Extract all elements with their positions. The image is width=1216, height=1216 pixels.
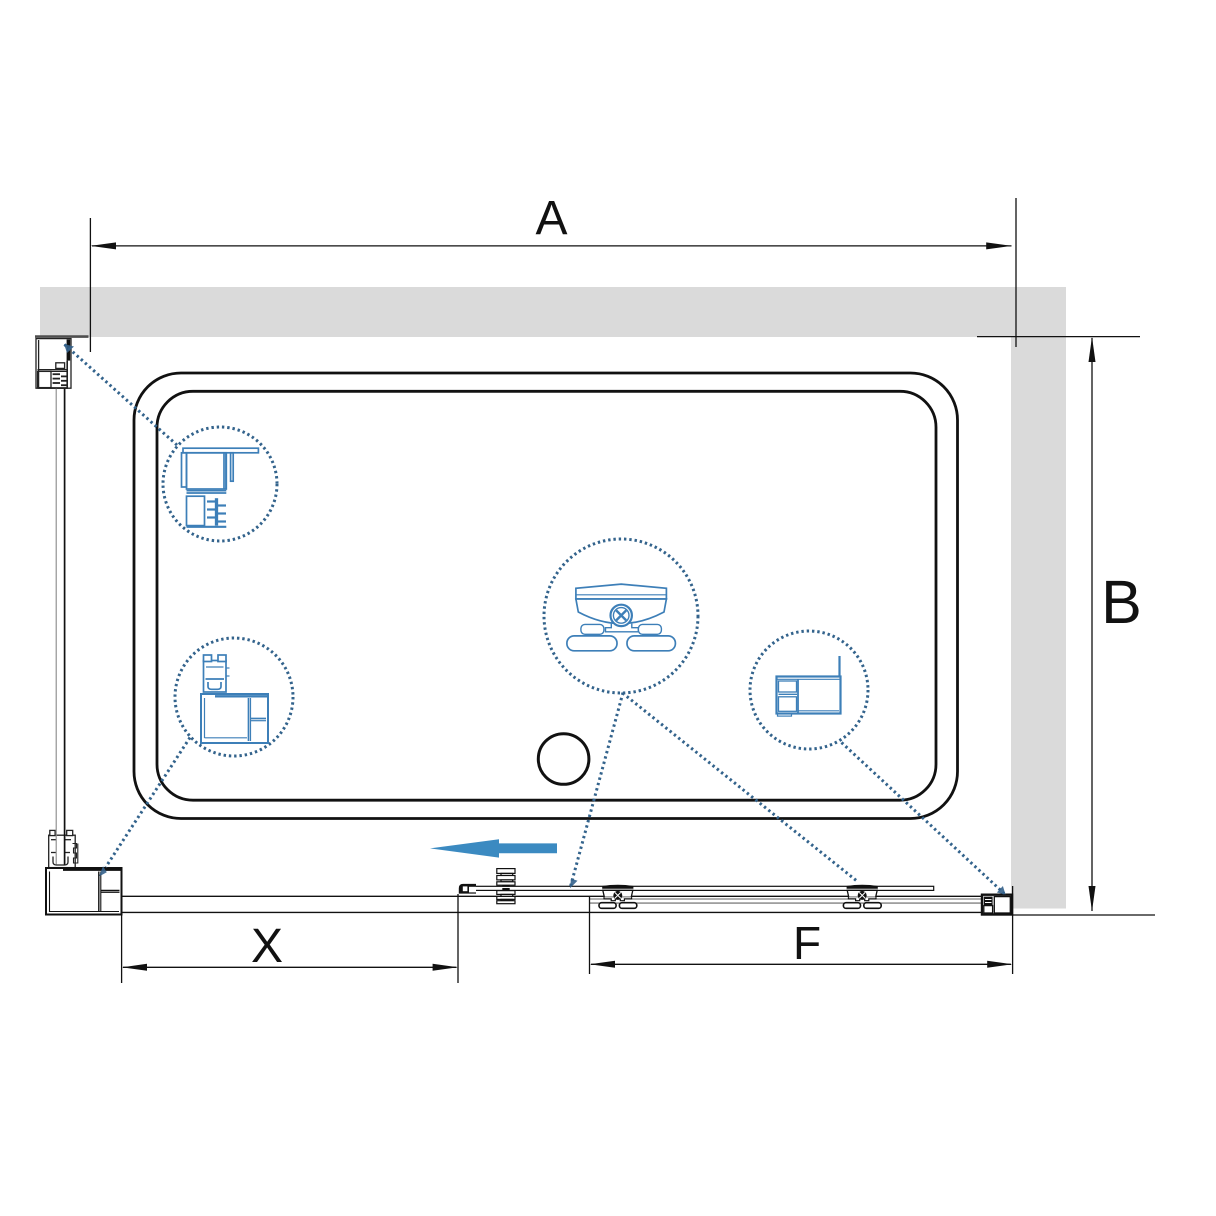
svg-text:X: X	[251, 920, 283, 973]
svg-text:A: A	[535, 192, 567, 245]
svg-text:F: F	[793, 917, 821, 969]
svg-text:B: B	[1101, 568, 1142, 636]
